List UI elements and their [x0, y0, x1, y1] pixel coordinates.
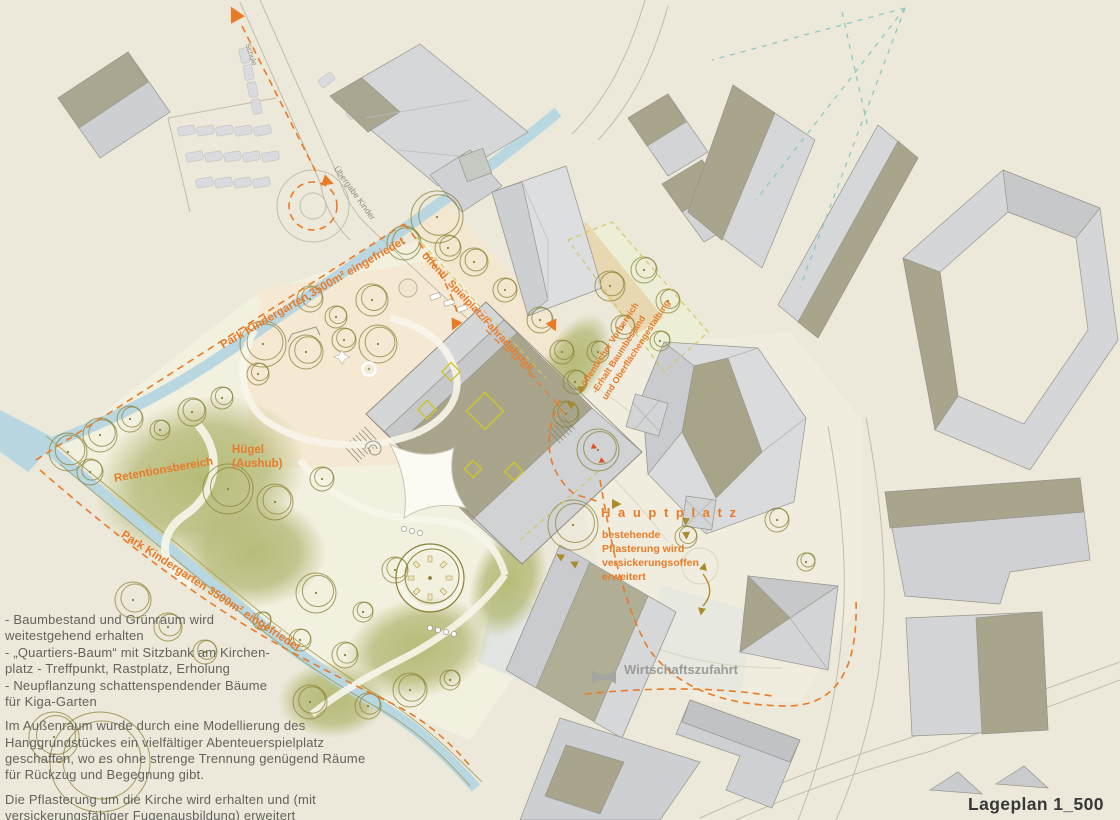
plan-title: Lageplan 1_500 — [968, 794, 1104, 815]
building-southeast-rect — [906, 612, 1048, 736]
note-paragraph-2: Im Außenraum wurde durch eine Modellieru… — [5, 718, 390, 784]
hauptplatz-label: H a u p t p l a t z — [601, 505, 738, 522]
huegel-label: Hügel (Aushub) — [232, 444, 282, 472]
hauptplatz-note: bestehende Pflasterung wird versickerung… — [602, 529, 699, 584]
note-paragraph-3: Die Pflasterung um die Kirche wird erhal… — [5, 792, 390, 820]
site-plan: Schule Übergabe Kinder Park Kindergarten… — [0, 0, 1120, 820]
legend-notes: - Baumbestand und Grünraum wird weitestg… — [5, 612, 390, 820]
note-paragraph-1: - Baumbestand und Grünraum wird weitestg… — [5, 612, 390, 710]
wirtschaftszufahrt-label: Wirtschaftszufahrt — [624, 662, 738, 677]
